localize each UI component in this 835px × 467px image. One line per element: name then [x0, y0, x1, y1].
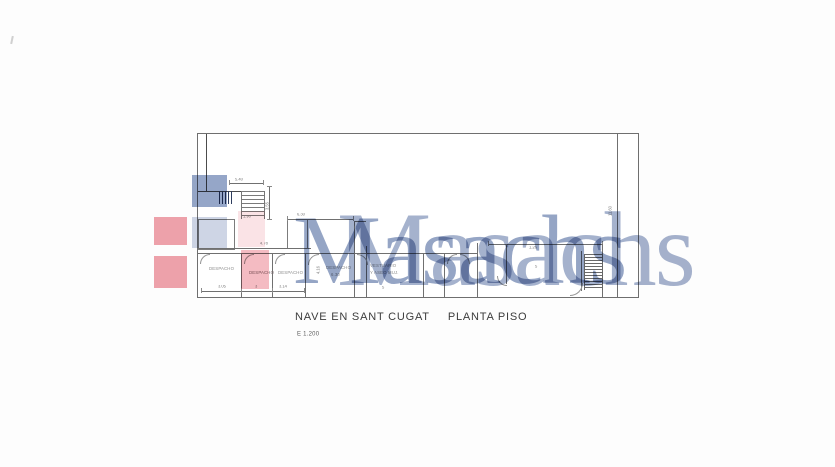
room-label-vestuario-line2: Y ASEO MUJ.: [370, 271, 399, 275]
masachs-logo-square-lightblue: [192, 217, 227, 248]
door-arc: [497, 276, 507, 286]
dim-office4-height: 4.16: [317, 266, 321, 274]
drawing-caption: NAVE EN SANT CUGAT PLANTA PISO: [295, 311, 527, 323]
wall: [617, 134, 618, 297]
drawing-scale: E 1.200: [297, 331, 319, 337]
drawing-subtitle: PLANTA PISO: [448, 311, 528, 323]
dim-hall-width: 5: [535, 265, 537, 269]
dimension-tick: [488, 241, 489, 246]
masachs-logo-square-pink-highlight: [241, 250, 269, 289]
staircase-hatch: [584, 254, 603, 290]
wall: [354, 221, 366, 222]
dimension-line: [229, 183, 263, 184]
door-arc: [275, 254, 285, 264]
dim-room3-width: 3.14: [279, 285, 287, 289]
dim-vest-width: 5: [382, 286, 384, 290]
room-label-despacho-3: DESPACHO: [278, 271, 303, 275]
room-label-despacho-4: DESPACHO: [326, 266, 351, 270]
door-arc: [200, 254, 210, 264]
dim-stair-height: 3.55: [266, 202, 270, 210]
room-label-vestuario-line1: VESTUARIO: [370, 264, 396, 268]
door-arc: [570, 283, 583, 296]
dimension-line: [198, 248, 311, 249]
drawing-title: NAVE EN SANT CUGAT: [295, 311, 430, 323]
dimension-line: [201, 291, 304, 292]
masachs-logo-square-red-1: [154, 217, 187, 245]
room-area-despacho-4: 6.30: [331, 273, 340, 277]
dim-stair-width: 5.40: [235, 178, 243, 182]
wall: [305, 253, 306, 297]
dim-room1-width: 3.05: [218, 285, 226, 289]
dimension-line: [488, 244, 602, 245]
door-arc: [308, 254, 319, 265]
masachs-logo-square-blue: [192, 175, 227, 207]
dimension-tick: [229, 180, 230, 185]
wall: [423, 253, 424, 297]
dim-mid-top: 6.30: [297, 213, 305, 217]
dim-right-height: 11.60: [609, 206, 613, 216]
dimension-tick: [201, 288, 202, 293]
door-arc: [447, 254, 457, 264]
masachs-logo-square-lightpink: [238, 211, 265, 247]
closet: [287, 219, 308, 249]
dim-hall-top: 1.26: [529, 246, 537, 250]
wall: [366, 246, 367, 297]
dimension-tick: [267, 186, 272, 187]
dimension-tick: [304, 288, 305, 293]
wall: [477, 243, 478, 297]
wall: [354, 221, 355, 297]
room-label-despacho-1: DESPACHO: [209, 267, 234, 271]
dimension-tick: [287, 216, 288, 221]
wall: [444, 253, 445, 297]
dimension-line: [287, 219, 353, 220]
masachs-logo-square-red-2: [154, 256, 187, 288]
scanned-floor-plan-image: DESPACHO DESPACHO DESPACHO DESPACHO 6.30…: [0, 0, 835, 467]
door-arc: [460, 254, 470, 264]
dimension-tick: [263, 180, 264, 185]
dimension-tick: [267, 219, 272, 220]
scan-speck: [10, 36, 14, 44]
dimension-tick: [272, 288, 273, 293]
wall: [198, 253, 477, 254]
